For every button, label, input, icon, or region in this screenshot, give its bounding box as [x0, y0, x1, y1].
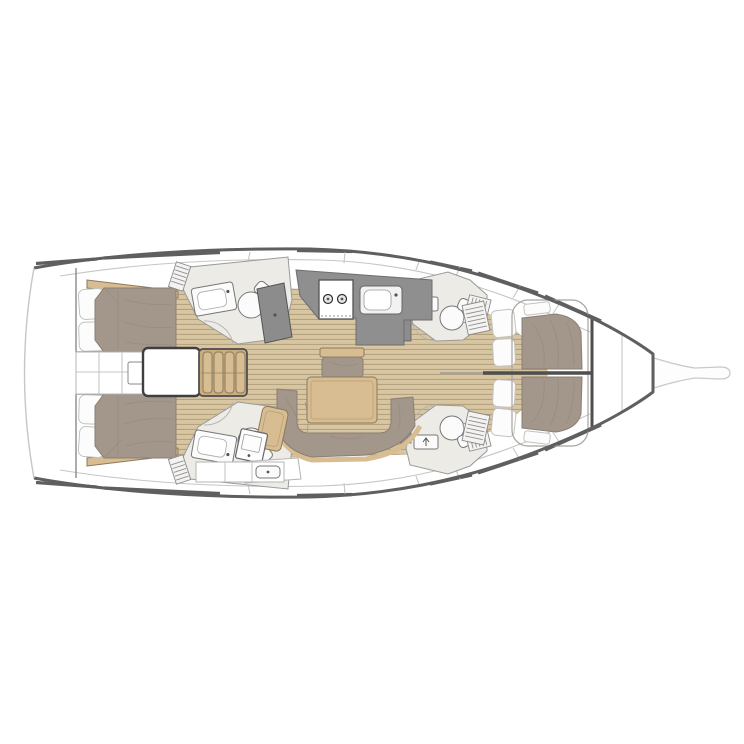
step — [236, 352, 245, 393]
companionway-steps — [128, 348, 247, 396]
engine-box — [143, 348, 200, 396]
saloon-table — [307, 377, 377, 423]
step — [214, 352, 223, 393]
bench-cushion — [322, 357, 363, 378]
aft-head-starboard-counter — [196, 462, 284, 482]
bench-back — [320, 348, 364, 357]
berth-mattress — [522, 314, 582, 369]
step — [203, 352, 212, 393]
chart-desk — [235, 428, 268, 463]
bowsprit — [654, 358, 730, 388]
yacht-floor-plan — [0, 0, 744, 744]
step — [225, 352, 234, 393]
aft-cabin-port — [78, 280, 178, 352]
sink-basin — [364, 290, 391, 310]
double-berth-mattress — [95, 288, 176, 352]
